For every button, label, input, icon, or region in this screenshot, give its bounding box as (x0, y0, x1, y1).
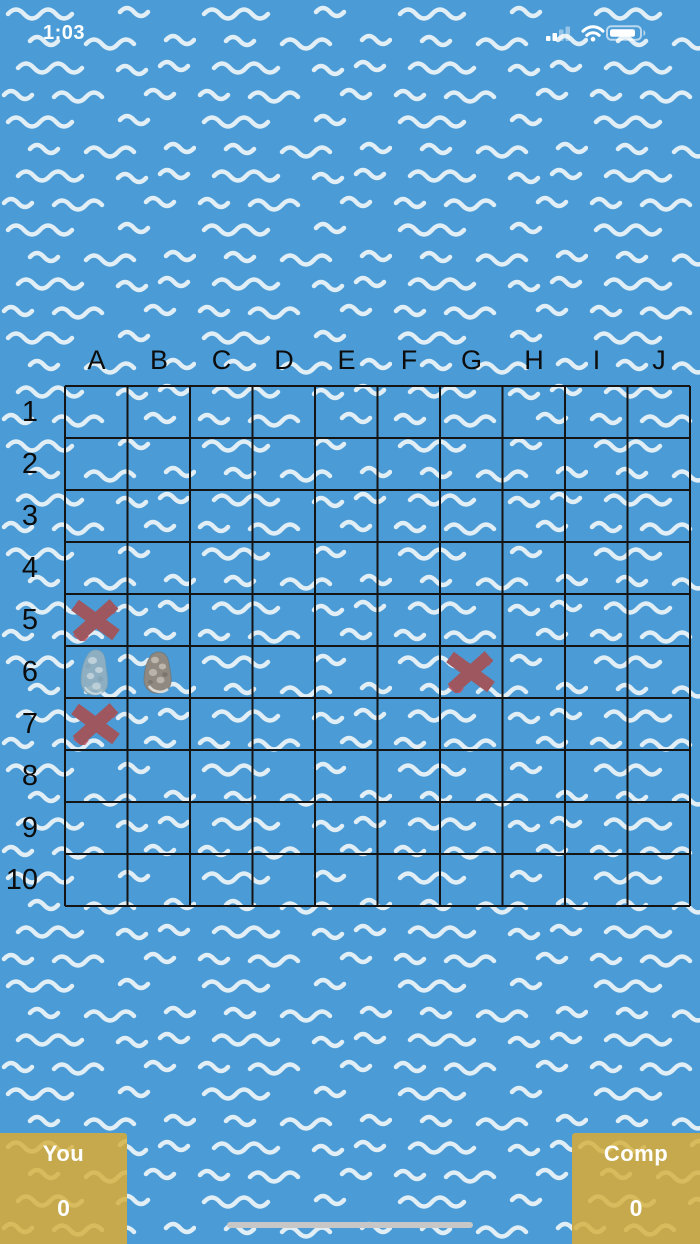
cell-J1[interactable] (628, 386, 691, 438)
cell-D1[interactable] (253, 386, 316, 438)
cell-G1[interactable] (440, 386, 503, 438)
column-label-E: E (315, 343, 378, 377)
battery-icon (606, 25, 648, 41)
cell-B10[interactable] (128, 854, 191, 906)
cell-B5[interactable] (128, 594, 191, 646)
cell-E1[interactable] (315, 386, 378, 438)
cell-B1[interactable] (128, 386, 191, 438)
row-label-4: 4 (0, 542, 38, 594)
cell-F7[interactable] (378, 698, 441, 750)
cell-I6[interactable] (565, 646, 628, 698)
cell-C2[interactable] (190, 438, 253, 490)
cell-H2[interactable] (503, 438, 566, 490)
cell-E7[interactable] (315, 698, 378, 750)
cell-I1[interactable] (565, 386, 628, 438)
cell-F8[interactable] (378, 750, 441, 802)
row-label-10: 10 (0, 854, 38, 906)
row-label-7: 7 (0, 698, 38, 750)
cell-G3[interactable] (440, 490, 503, 542)
cell-C10[interactable] (190, 854, 253, 906)
cell-J6[interactable] (628, 646, 691, 698)
cell-A9[interactable] (65, 802, 128, 854)
battleship-game-screen: 1:03 ABCDEFGHIJ 12345678910 You 0 (0, 0, 700, 1244)
cell-C5[interactable] (190, 594, 253, 646)
row-label-5: 5 (0, 594, 38, 646)
cell-A10[interactable] (65, 854, 128, 906)
home-indicator[interactable] (227, 1222, 473, 1228)
row-label-8: 8 (0, 750, 38, 802)
cell-C6[interactable] (190, 646, 253, 698)
cell-C3[interactable] (190, 490, 253, 542)
cell-C7[interactable] (190, 698, 253, 750)
cell-G8[interactable] (440, 750, 503, 802)
status-bar-time: 1:03 (30, 21, 98, 45)
cell-G7[interactable] (440, 698, 503, 750)
cell-J5[interactable] (628, 594, 691, 646)
cell-E9[interactable] (315, 802, 378, 854)
cell-D6[interactable] (253, 646, 316, 698)
cell-D3[interactable] (253, 490, 316, 542)
cell-B6[interactable] (128, 646, 191, 698)
cell-A5[interactable] (65, 594, 128, 646)
cell-I10[interactable] (565, 854, 628, 906)
wifi-icon (581, 24, 605, 42)
cell-C8[interactable] (190, 750, 253, 802)
cell-A3[interactable] (65, 490, 128, 542)
cell-F5[interactable] (378, 594, 441, 646)
cell-I3[interactable] (565, 490, 628, 542)
cell-F2[interactable] (378, 438, 441, 490)
cell-J8[interactable] (628, 750, 691, 802)
cell-D4[interactable] (253, 542, 316, 594)
cell-I5[interactable] (565, 594, 628, 646)
cell-E8[interactable] (315, 750, 378, 802)
player-score-panel: You 0 (0, 1133, 127, 1244)
cell-E5[interactable] (315, 594, 378, 646)
cell-H4[interactable] (503, 542, 566, 594)
cell-E4[interactable] (315, 542, 378, 594)
cell-J3[interactable] (628, 490, 691, 542)
cell-F10[interactable] (378, 854, 441, 906)
cell-D5[interactable] (253, 594, 316, 646)
cell-J4[interactable] (628, 542, 691, 594)
row-label-2: 2 (0, 438, 38, 490)
cell-J7[interactable] (628, 698, 691, 750)
row-label-6: 6 (0, 646, 38, 698)
cell-H8[interactable] (503, 750, 566, 802)
column-label-A: A (65, 343, 128, 377)
cell-F3[interactable] (378, 490, 441, 542)
cell-H9[interactable] (503, 802, 566, 854)
cell-C1[interactable] (190, 386, 253, 438)
cell-H3[interactable] (503, 490, 566, 542)
cell-B8[interactable] (128, 750, 191, 802)
cell-J2[interactable] (628, 438, 691, 490)
cell-A2[interactable] (65, 438, 128, 490)
player-score: 0 (0, 1195, 127, 1222)
cell-I9[interactable] (565, 802, 628, 854)
cell-A4[interactable] (65, 542, 128, 594)
cell-D7[interactable] (253, 698, 316, 750)
cell-E10[interactable] (315, 854, 378, 906)
cell-B2[interactable] (128, 438, 191, 490)
cell-J10[interactable] (628, 854, 691, 906)
cell-I8[interactable] (565, 750, 628, 802)
cell-C9[interactable] (190, 802, 253, 854)
column-label-H: H (503, 343, 566, 377)
cell-I2[interactable] (565, 438, 628, 490)
cell-B7[interactable] (128, 698, 191, 750)
cell-I7[interactable] (565, 698, 628, 750)
cell-G4[interactable] (440, 542, 503, 594)
cell-H7[interactable] (503, 698, 566, 750)
opponent-label: Comp (572, 1141, 700, 1167)
column-label-F: F (378, 343, 441, 377)
cell-F6[interactable] (378, 646, 441, 698)
cell-G10[interactable] (440, 854, 503, 906)
cell-G9[interactable] (440, 802, 503, 854)
opponent-score-panel: Comp 0 (572, 1133, 700, 1244)
column-label-D: D (253, 343, 316, 377)
cell-E2[interactable] (315, 438, 378, 490)
cell-H6[interactable] (503, 646, 566, 698)
column-label-B: B (128, 343, 191, 377)
cell-G6[interactable] (440, 646, 503, 698)
player-label: You (0, 1141, 127, 1167)
cell-A8[interactable] (65, 750, 128, 802)
cell-J9[interactable] (628, 802, 691, 854)
cell-A6[interactable] (65, 646, 128, 698)
cell-F9[interactable] (378, 802, 441, 854)
column-label-I: I (565, 343, 628, 377)
cell-D9[interactable] (253, 802, 316, 854)
cell-E6[interactable] (315, 646, 378, 698)
row-label-9: 9 (0, 802, 38, 854)
cell-H10[interactable] (503, 854, 566, 906)
row-label-1: 1 (0, 386, 38, 438)
opponent-score: 0 (572, 1195, 700, 1222)
cell-E3[interactable] (315, 490, 378, 542)
column-label-C: C (190, 343, 253, 377)
cell-D10[interactable] (253, 854, 316, 906)
cell-A1[interactable] (65, 386, 128, 438)
column-label-J: J (628, 343, 691, 377)
cell-C4[interactable] (190, 542, 253, 594)
cell-I4[interactable] (565, 542, 628, 594)
cell-F4[interactable] (378, 542, 441, 594)
cell-D8[interactable] (253, 750, 316, 802)
cell-B9[interactable] (128, 802, 191, 854)
cell-H5[interactable] (503, 594, 566, 646)
cell-B3[interactable] (128, 490, 191, 542)
cell-G2[interactable] (440, 438, 503, 490)
cell-H1[interactable] (503, 386, 566, 438)
cell-A7[interactable] (65, 698, 128, 750)
row-label-3: 3 (0, 490, 38, 542)
cell-B4[interactable] (128, 542, 191, 594)
cell-F1[interactable] (378, 386, 441, 438)
column-label-G: G (440, 343, 503, 377)
cellular-signal-icon (546, 26, 572, 41)
cell-G5[interactable] (440, 594, 503, 646)
cell-D2[interactable] (253, 438, 316, 490)
